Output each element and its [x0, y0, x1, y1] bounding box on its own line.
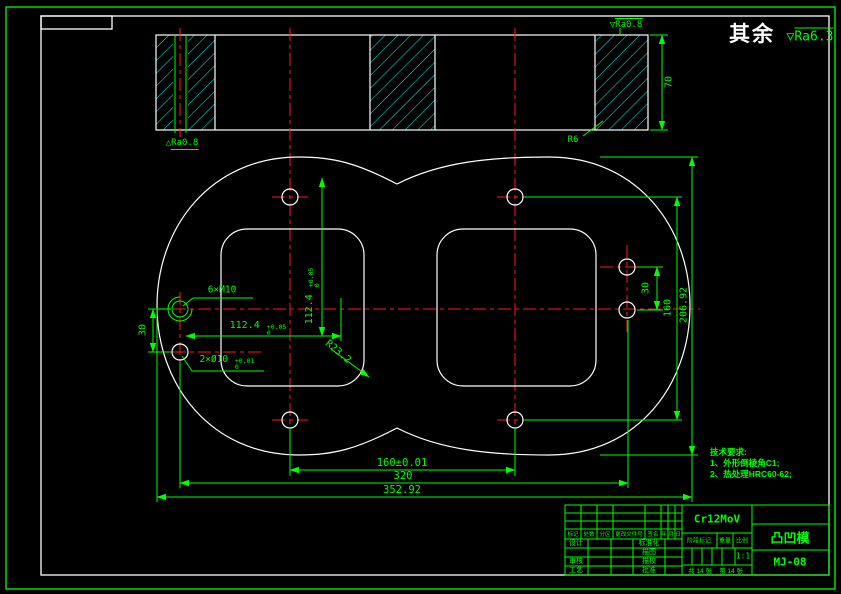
- rev-header-day: 日: [675, 530, 681, 538]
- plan-view: [157, 157, 690, 455]
- row-pitch-dim: 160: [663, 299, 674, 317]
- surface-finish-symbol: ▽Ra6.3: [787, 30, 834, 45]
- rev-header-count: 处数: [583, 530, 594, 538]
- drawing-number: MJ-08: [773, 556, 806, 569]
- overall-height-dim: 206.92: [679, 287, 690, 323]
- finish-bottom-label: △Ra0.8: [166, 138, 199, 148]
- cavity-height-dim: 112.4 +0.050: [304, 268, 320, 325]
- scale-value: 1:1: [736, 552, 750, 561]
- sheet-number: 第 14 张: [719, 565, 743, 575]
- tech-line-1: 1、外形倒棱角C1;: [710, 458, 792, 469]
- finish-top-label: ▽Ra0.8: [610, 20, 643, 30]
- thread-holes-label: 6×M10: [208, 285, 237, 296]
- material-label: Cr12MoV: [694, 513, 740, 526]
- cell-approve: 批准: [642, 565, 656, 575]
- left-pitch-dim: 30: [138, 324, 149, 336]
- column-pitch-dim: 320: [394, 470, 413, 482]
- bottom-hole-pitch-dim: 160±0.01: [377, 457, 428, 469]
- drawing-geometry: [0, 0, 841, 594]
- rev-header-sign: 签名: [647, 530, 658, 538]
- tech-title: 技术要求:: [710, 447, 792, 458]
- rev-header-zone: 分区: [599, 530, 610, 538]
- fillet-radius-label: R6: [568, 135, 579, 145]
- dowel-holes-label: 2×Ø10 +0.010: [200, 354, 255, 370]
- sheet-total: 共 14 张: [688, 565, 712, 575]
- cad-canvas: 其余 ▽Ra6.3 ▽Ra0.8 70 R6 △Ra0.8 6×M10 2×Ø1…: [0, 0, 841, 594]
- stage-mark-label: 阶段标记: [687, 536, 711, 545]
- cavity-width-dim: 112.4 +0.050: [230, 320, 287, 336]
- overall-width-dim: 352.92: [383, 484, 421, 496]
- tech-line-2: 2、热处理HRC60-62;: [710, 469, 792, 480]
- scale-label: 比例: [736, 536, 748, 545]
- rev-header-year: 年: [661, 530, 667, 538]
- cell-process: 工艺: [569, 565, 583, 575]
- rev-header-docno: 更改文件号: [615, 530, 643, 538]
- rev-header-month: 月: [668, 530, 674, 538]
- surplus-finish-label: 其余: [729, 18, 775, 48]
- rev-header-mark: 标记: [567, 530, 578, 538]
- right-pitch-dim: 30: [641, 282, 652, 294]
- section-height-dim: 70: [664, 76, 675, 88]
- part-name: 凸凹模: [770, 528, 809, 547]
- weight-label: 重量: [719, 536, 731, 545]
- technical-requirements: 技术要求: 1、外形倒棱角C1; 2、热处理HRC60-62;: [710, 447, 792, 480]
- section-view: [156, 28, 668, 136]
- cell-design: 设计: [569, 538, 583, 548]
